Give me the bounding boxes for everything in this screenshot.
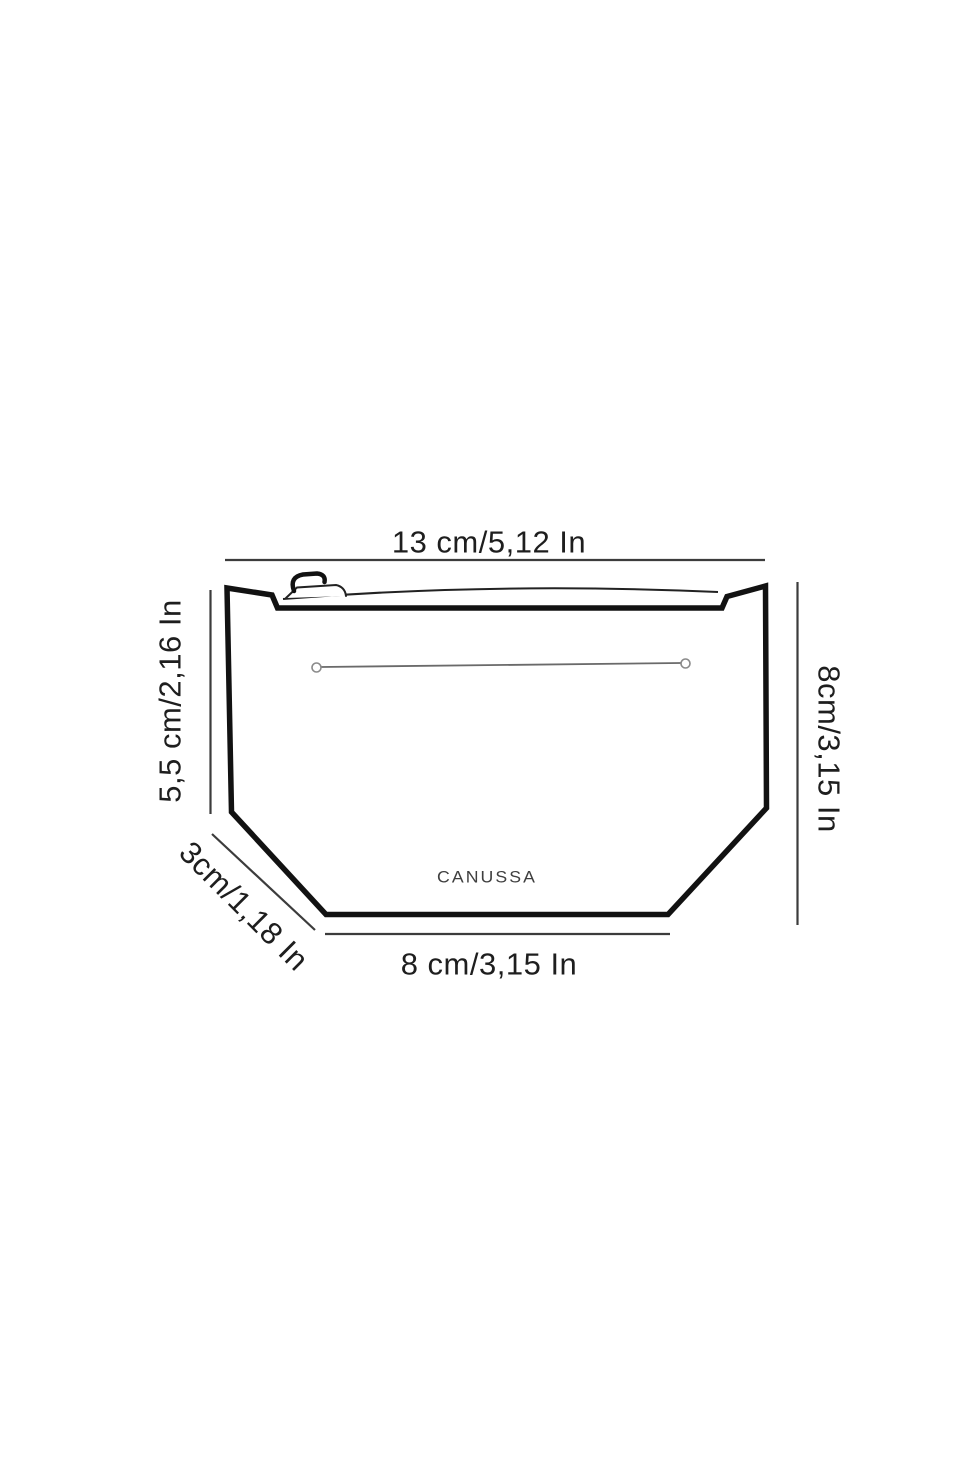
zipper-tape-line: [283, 588, 718, 599]
brand-logo: CANUSSA: [437, 869, 537, 886]
product-dimension-diagram: 13 cm/5,12 In 5,5 cm/2,16 In 3cm/1,18 In…: [0, 0, 980, 1469]
front-pocket-zip-end-right: [681, 659, 690, 668]
front-pocket-zip-end-left: [312, 663, 321, 672]
bag-outline: [227, 586, 767, 915]
dimension-label-right-height: 8cm/3,15 In: [814, 665, 845, 832]
dimension-label-left-height: 5,5 cm/2,16 In: [155, 599, 186, 802]
dimension-label-bottom-width: 8 cm/3,15 In: [401, 949, 578, 980]
dimension-label-top-width: 13 cm/5,12 In: [392, 527, 586, 558]
